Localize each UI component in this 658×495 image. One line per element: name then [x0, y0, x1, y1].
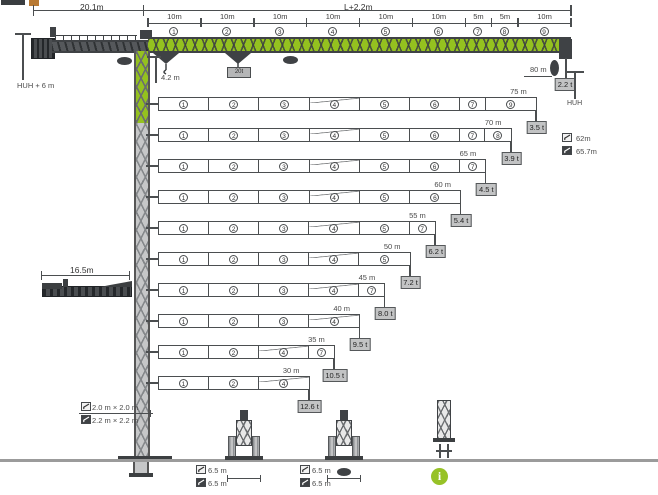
tip-radius-label: 80 m [530, 65, 547, 74]
row-segment: 4 [310, 129, 360, 141]
row-drop-line [384, 296, 386, 307]
row-length-label: 40 m [290, 304, 350, 313]
segment-dim-label: 10m [159, 12, 189, 21]
row-segment: 1 [159, 284, 209, 296]
tower-row-dash [146, 351, 158, 353]
jib-tip-block [559, 39, 572, 59]
row-segment-number: 2 [229, 131, 238, 140]
row-segment-number: 3 [280, 100, 289, 109]
row-segment-number: 1 [179, 379, 188, 388]
row-segment: 5 [360, 222, 410, 234]
row-length-label: 65 m [416, 149, 476, 158]
row-segment: 2 [209, 346, 259, 358]
tip-radius-line [524, 76, 552, 77]
row-segment: 4 [309, 284, 359, 296]
anchored-mast [433, 398, 455, 460]
tower-row-dash [146, 258, 158, 260]
row-segment: 6 [410, 129, 460, 141]
legend-item-label: 62m [576, 134, 591, 143]
row-segment-number: 2 [229, 193, 238, 202]
row-segment: 5 [360, 129, 410, 141]
anchored-mast-crossbar [436, 450, 452, 452]
hook-height-icon-dark [196, 478, 206, 487]
row-segment-number: 2 [229, 379, 238, 388]
foundation-ballast-left [328, 436, 336, 458]
row-capacity-box: 3.5 t [526, 121, 547, 134]
row-segment-number: 2 [229, 255, 238, 264]
tower-row-dash [146, 227, 158, 229]
row-segment: 3 [259, 315, 309, 327]
hook-height-icon-light [300, 465, 310, 474]
hook-symbol-icon [283, 56, 298, 64]
row-segment-number: 6 [430, 162, 439, 171]
row-segment: 2 [209, 377, 259, 389]
foundation-lattice [336, 420, 352, 446]
row-segment: 2 [209, 160, 259, 172]
row-segment: 2 [209, 253, 259, 265]
hook-block-label: 20t [227, 67, 251, 78]
hook-height-icon-dark [81, 415, 91, 424]
tower-top-green-section [134, 51, 150, 123]
row-drop-line [485, 172, 487, 183]
segment-dim-label: 10m [424, 12, 454, 21]
jib-dim-line [144, 10, 571, 11]
row-taper-line [309, 315, 359, 320]
dim-tick [227, 475, 228, 482]
row-length-label: 60 m [391, 180, 451, 189]
row-length-label: 75 m [467, 87, 527, 96]
tower-base-foot [133, 460, 149, 474]
hook-height-icon-dark [300, 478, 310, 487]
foundation-lattice [236, 420, 252, 446]
trolley-icon [224, 53, 252, 67]
row-segment-number: 6 [430, 131, 439, 140]
row-taper-line [309, 222, 358, 227]
row-segment: 5 [359, 253, 409, 265]
row-segment-number: 7 [418, 224, 427, 233]
row-segment-number: 1 [179, 317, 188, 326]
row-segment: 1 [159, 129, 209, 141]
row-segment: 4 [310, 98, 360, 110]
row-segment: 2 [209, 191, 259, 203]
row-segment-number: 7 [468, 131, 477, 140]
row-drop-line [535, 110, 537, 121]
row-segment: 7 [359, 284, 384, 296]
row-length-label: 55 m [366, 211, 426, 220]
foundation-base-1 [227, 408, 265, 482]
row-taper-line [259, 377, 309, 382]
jib-config-row: 124 [158, 376, 310, 390]
tower-row-dash [146, 165, 158, 167]
row-segment: 5 [360, 191, 410, 203]
row-segment: 4 [309, 222, 359, 234]
row-segment-number: 1 [179, 193, 188, 202]
row-drop-line [460, 203, 462, 214]
row-segment: 1 [159, 315, 209, 327]
row-segment: 3 [259, 129, 309, 141]
jib-lattice [148, 37, 571, 53]
hook-height-icon-light [562, 133, 572, 142]
tower-row-dash [146, 134, 158, 136]
row-length-label: 45 m [315, 273, 375, 282]
row-segment-number: 6 [430, 100, 439, 109]
tower-row-dash [146, 103, 158, 105]
row-segment-number: 6 [430, 193, 439, 202]
dim-tick [360, 475, 361, 482]
foundation-width-label: 6.5 m [312, 479, 331, 488]
segment-number: 4 [328, 27, 337, 36]
row-segment: 2 [209, 222, 259, 234]
dim-tick [359, 18, 361, 27]
foundation-width-label: 6.5 m [312, 466, 331, 475]
row-segment: 4 [310, 160, 360, 172]
row-segment: 3 [259, 253, 309, 265]
dim-tick [412, 18, 414, 27]
tower-base-plate [129, 473, 153, 477]
row-taper-line [309, 253, 358, 258]
segment-number: 6 [434, 27, 443, 36]
row-segment-number: 3 [279, 317, 288, 326]
row-segment: 1 [159, 253, 209, 265]
anchored-mast-lattice [437, 400, 451, 440]
trolley-dim-bar [147, 56, 161, 58]
dim-tick [150, 410, 151, 417]
foundation-dim-line [227, 478, 261, 479]
row-segment: 6 [410, 98, 460, 110]
row-segment: 5 [360, 160, 410, 172]
row-segment-number: 7 [468, 100, 477, 109]
trolley-dim-vline [155, 56, 157, 83]
tip-hoist-line [565, 58, 567, 79]
row-segment: 2 [209, 129, 259, 141]
row-segment-number: 1 [179, 255, 188, 264]
segment-dim-label: 10m [530, 12, 560, 21]
jib-config-row: 123457 [158, 221, 436, 235]
row-segment: 6 [410, 160, 460, 172]
row-segment-number: 2 [229, 162, 238, 171]
trolley-clearance-label: 4.2 m [161, 73, 180, 82]
row-segment-number: 1 [179, 100, 188, 109]
row-length-label: 35 m [265, 335, 325, 344]
row-segment: 3 [259, 284, 309, 296]
segment-number: 2 [222, 27, 231, 36]
row-capacity-box: 4.5 t [476, 183, 497, 196]
row-drop-line [510, 141, 512, 152]
foundation-base-plate [325, 456, 363, 460]
row-taper-line [310, 129, 359, 134]
segment-dim-label: 10m [371, 12, 401, 21]
crane-load-diagram: 20.1m L+2.2m HUH + 6 m 20t 4.2 m 80 m [0, 0, 658, 495]
dim-tick [41, 271, 42, 280]
row-segment-number: 3 [279, 224, 288, 233]
dim-tick [33, 5, 34, 16]
row-segment-number: 1 [179, 131, 188, 140]
tower-row-dash [146, 289, 158, 291]
tip-capacity-box: 2.2 t [555, 78, 576, 91]
row-drop-line [409, 265, 411, 276]
row-drop-line [434, 234, 436, 245]
legend-item-label: 65.7m [576, 147, 597, 156]
row-capacity-box: 9.5 t [350, 338, 371, 351]
dim-tick [306, 18, 308, 27]
row-segment-number: 2 [229, 224, 238, 233]
row-segment: 2 [209, 98, 259, 110]
foundation-ballast-right [352, 436, 360, 458]
cropped-icon-dark [1, 0, 25, 5]
jib-config-row: 12345679 [158, 97, 537, 111]
row-taper-line [310, 98, 359, 103]
anchored-mast-collar [433, 438, 455, 442]
segment-number: 1 [169, 27, 178, 36]
row-capacity-box: 12.6 t [297, 400, 322, 413]
foundation-ballast-right [252, 436, 260, 458]
row-segment: 4 [309, 315, 359, 327]
foundation-ballast-left [228, 436, 236, 458]
dim-tick [200, 18, 202, 27]
hook-symbol-icon [117, 57, 132, 65]
row-segment: 2 [209, 284, 259, 296]
row-segment: 6 [410, 191, 460, 203]
huh-right-vline [574, 71, 576, 99]
row-capacity-box: 3.9 t [501, 152, 522, 165]
foundation-width-label: 6.5 m [208, 479, 227, 488]
row-segment-number: 3 [279, 193, 288, 202]
row-capacity-box: 8.0 t [375, 307, 396, 320]
row-drop-line [308, 389, 310, 400]
row-segment: 1 [159, 191, 209, 203]
jib-config-row: 1234567 [158, 159, 486, 173]
row-segment-number: 7 [317, 348, 326, 357]
row-segment-number: 5 [380, 131, 389, 140]
segment-dim-label: 10m [212, 12, 242, 21]
row-capacity-box: 7.2 t [400, 276, 421, 289]
hook-symbol-icon [337, 468, 351, 476]
row-length-label: 50 m [341, 242, 401, 251]
segment-number: 9 [540, 27, 549, 36]
jib-config-row: 12345678 [158, 128, 512, 142]
row-drop-line [359, 327, 361, 338]
tower-row-dash [146, 320, 158, 322]
folded-dim-line [41, 275, 130, 276]
jib-config-row: 123456 [158, 190, 461, 204]
tower-row-dash [146, 382, 158, 384]
mast-section-label: 2.0 m × 2.0 m [92, 403, 138, 412]
row-segment: 3 [259, 222, 309, 234]
row-segment-number: 2 [229, 100, 238, 109]
foundation-dim-line [327, 478, 361, 479]
row-segment-number: 2 [229, 286, 238, 295]
segment-number: 5 [381, 27, 390, 36]
row-segment: 1 [159, 160, 209, 172]
row-segment: 1 [159, 377, 209, 389]
folded-dim-label: 16.5m [70, 265, 94, 275]
row-taper-line [309, 284, 358, 289]
row-segment: 2 [209, 315, 259, 327]
row-segment: 7 [460, 98, 485, 110]
row-taper-line [310, 160, 359, 165]
row-segment-number: 2 [229, 317, 238, 326]
jib-config-row: 12347 [158, 283, 385, 297]
hook-height-icon-light [196, 465, 206, 474]
mast-section-divider [79, 413, 153, 414]
dim-tick [147, 18, 149, 27]
huh6-label: HUH + 6 m [17, 81, 54, 90]
segment-number: 7 [473, 27, 482, 36]
row-segment: 7 [460, 160, 485, 172]
dim-tick [260, 475, 261, 482]
row-segment-number: 5 [380, 100, 389, 109]
row-drop-line [333, 358, 335, 369]
jib-config-row: 1234 [158, 314, 360, 328]
segment-number: 3 [275, 27, 284, 36]
dim-tick [253, 18, 255, 27]
row-segment-number: 3 [280, 131, 289, 140]
dim-tick [570, 18, 572, 27]
folded-crane-counterweight [42, 283, 62, 289]
row-segment: 4 [259, 346, 309, 358]
hook-height-icon-light [81, 402, 91, 411]
row-segment-number: 3 [279, 162, 288, 171]
dim-tick [570, 5, 572, 16]
row-length-label: 70 m [442, 118, 502, 127]
row-segment-number: 3 [279, 286, 288, 295]
row-segment: 7 [460, 129, 485, 141]
row-segment: 4 [259, 377, 309, 389]
row-segment: 3 [259, 160, 309, 172]
row-segment: 1 [159, 346, 209, 358]
row-segment: 3 [259, 191, 309, 203]
row-segment: 9 [486, 98, 536, 110]
tip-hook-icon [550, 60, 559, 76]
row-segment-number: 1 [179, 162, 188, 171]
row-segment-number: 5 [380, 162, 389, 171]
segment-dim-label: 10m [318, 12, 348, 21]
mast-section-label: 2.2 m × 2.2 m [92, 416, 138, 425]
row-taper-line [259, 346, 308, 351]
counterjib-dim-line [33, 10, 143, 11]
row-segment: 5 [360, 98, 410, 110]
row-segment-number: 5 [380, 224, 389, 233]
row-segment: 7 [410, 222, 435, 234]
row-segment: 8 [485, 129, 510, 141]
row-segment-number: 5 [380, 255, 389, 264]
row-segment-number: 9 [506, 100, 515, 109]
row-taper-line [310, 191, 359, 196]
row-segment: 3 [259, 98, 309, 110]
hook-height-icon-dark [562, 146, 572, 155]
counterjib-railing [55, 35, 137, 41]
row-segment-number: 3 [279, 255, 288, 264]
row-segment-number: 7 [367, 286, 376, 295]
row-capacity-box: 5.4 t [451, 214, 472, 227]
row-capacity-box: 6.2 t [425, 245, 446, 258]
segment-dim-label: 10m [265, 12, 295, 21]
huh-right-label: HUH [567, 100, 582, 107]
jib-config-row: 12345 [158, 252, 411, 266]
row-segment: 4 [310, 191, 360, 203]
folded-crane-jib-tip [100, 279, 132, 288]
row-segment: 4 [309, 253, 359, 265]
row-segment: 7 [309, 346, 334, 358]
folded-crane-mast-stub [63, 279, 68, 287]
row-segment-number: 1 [179, 224, 188, 233]
jib-config-row: 1247 [158, 345, 335, 359]
foundation-width-label: 6.5 m [208, 466, 227, 475]
row-segment-number: 5 [380, 193, 389, 202]
row-segment-number: 1 [179, 348, 188, 357]
row-segment: 1 [159, 222, 209, 234]
foundation-base-plate [225, 456, 263, 460]
segment-dim-label: 5m [490, 12, 520, 21]
huh6-vline [22, 33, 24, 80]
row-capacity-box: 10.5 t [322, 369, 347, 382]
row-segment: 1 [159, 98, 209, 110]
row-segment-number: 2 [229, 348, 238, 357]
tower-row-dash [146, 196, 158, 198]
info-icon[interactable]: i [431, 468, 448, 485]
counterjib-flag [50, 27, 56, 37]
segment-number: 8 [500, 27, 509, 36]
row-segment-number: 1 [179, 286, 188, 295]
row-segment-number: 8 [493, 131, 502, 140]
row-segment-number: 7 [468, 162, 477, 171]
row-length-label: 30 m [240, 366, 300, 375]
